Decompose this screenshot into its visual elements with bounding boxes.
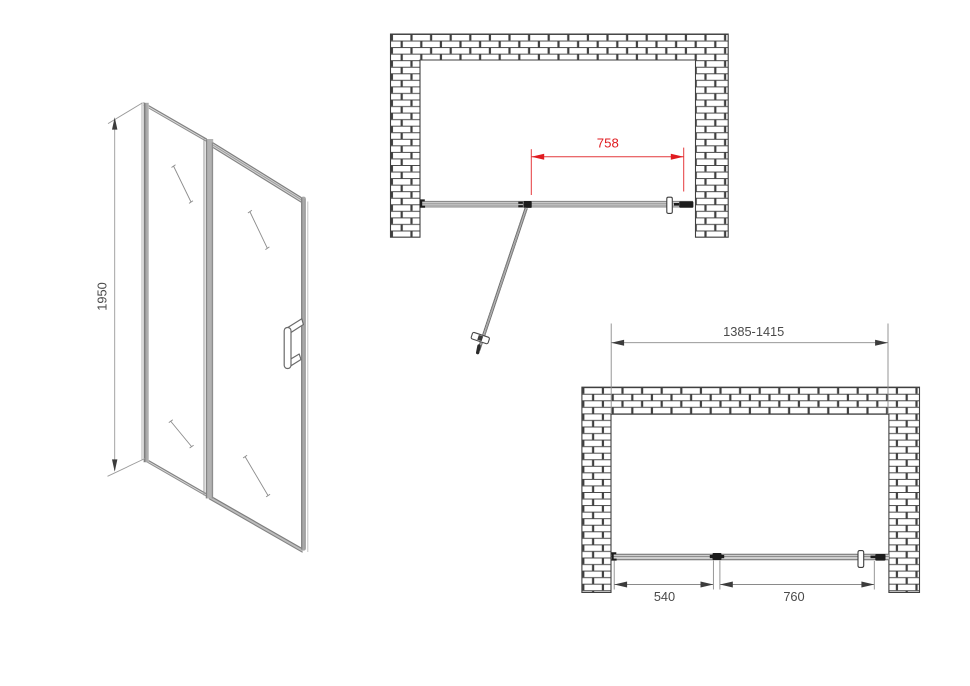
svg-text:1950: 1950 (95, 282, 110, 310)
svg-text:540: 540 (654, 589, 675, 604)
svg-text:758: 758 (597, 135, 619, 150)
svg-text:1385-1415: 1385-1415 (723, 324, 784, 339)
svg-text:760: 760 (783, 589, 804, 604)
